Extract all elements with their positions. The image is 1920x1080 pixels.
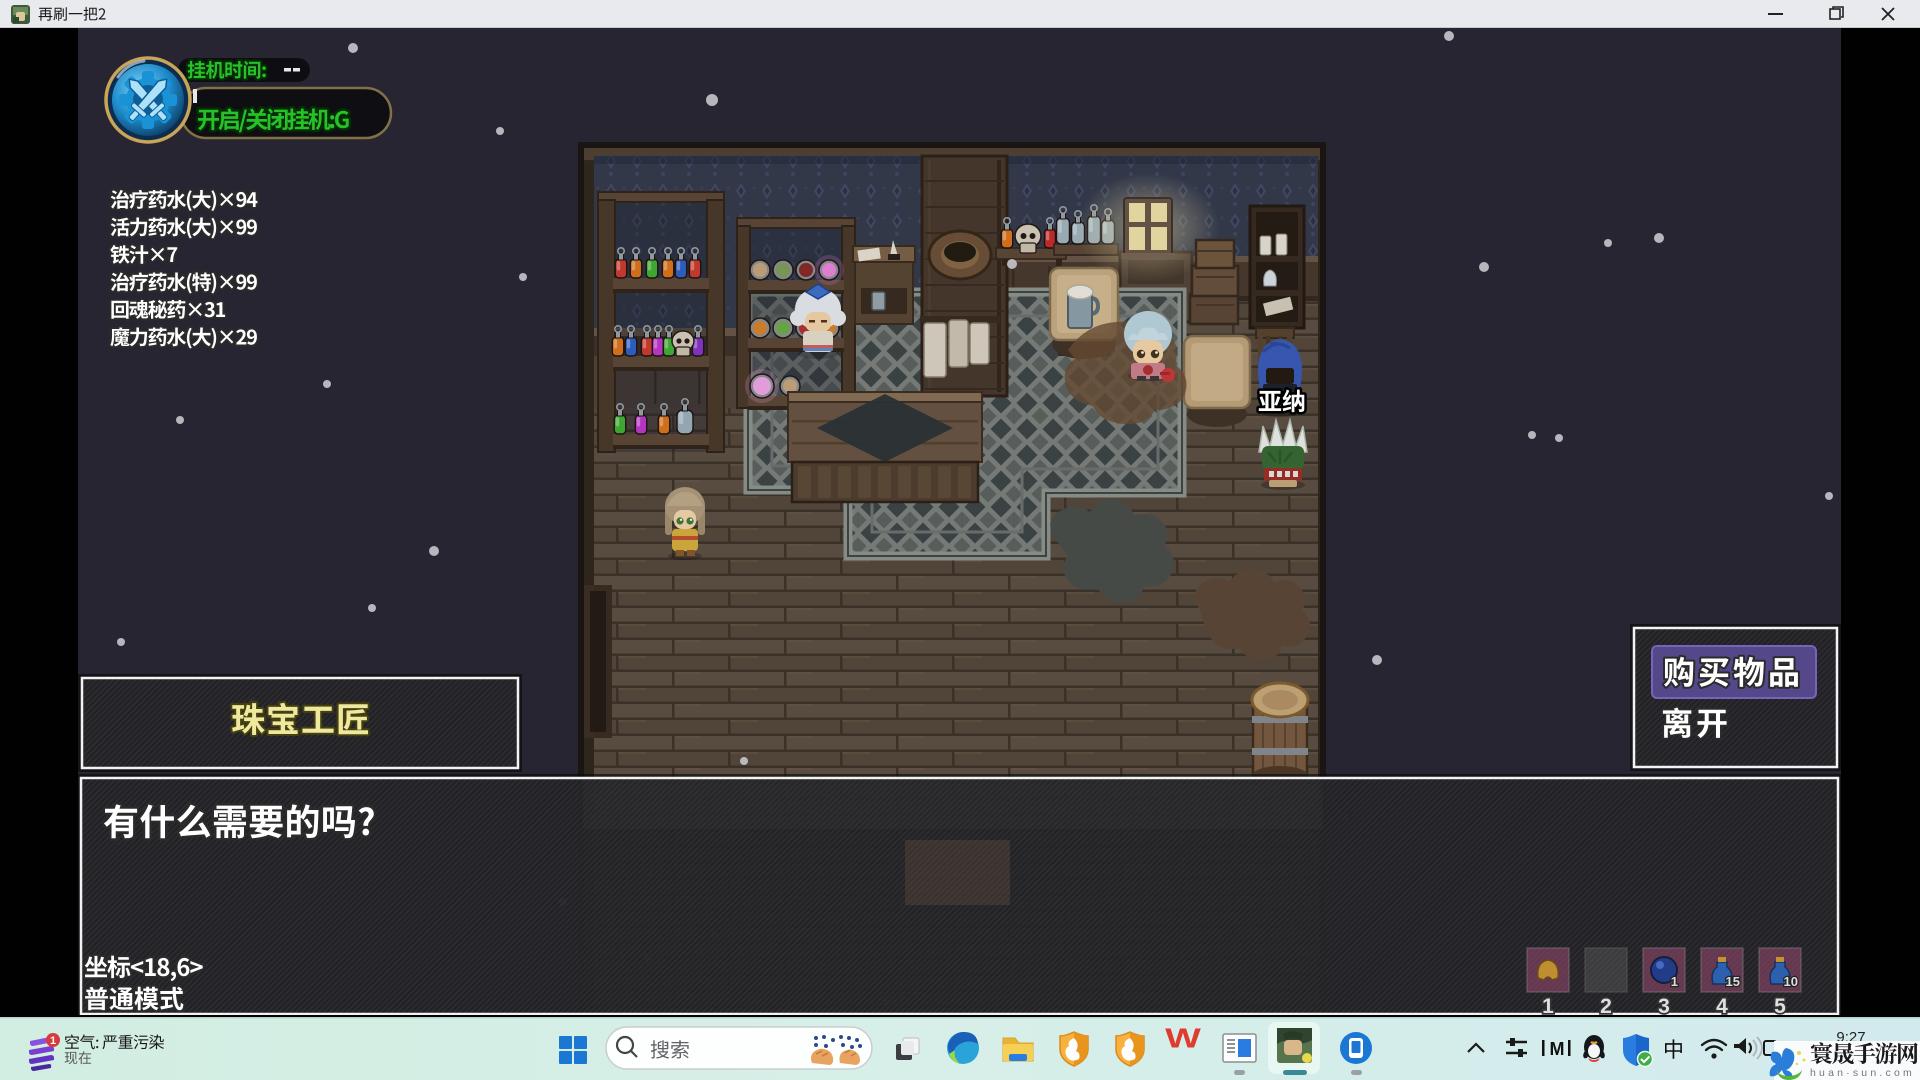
svg-text:1: 1 (1542, 995, 1554, 1018)
svg-text:2: 2 (1600, 995, 1612, 1018)
svg-text:4: 4 (1716, 995, 1728, 1018)
svg-text:15: 15 (1726, 974, 1740, 989)
svg-text:1: 1 (50, 1035, 56, 1047)
svg-text:3: 3 (1658, 995, 1670, 1018)
svg-text:huan·sun.com: huan·sun.com (1810, 1067, 1915, 1079)
svg-text:W: W (1165, 1023, 1201, 1054)
svg-text:5: 5 (1774, 995, 1786, 1018)
svg-text:1: 1 (1671, 974, 1678, 989)
svg-text:10: 10 (1784, 974, 1798, 989)
svg-text:M: M (1550, 1039, 1565, 1059)
